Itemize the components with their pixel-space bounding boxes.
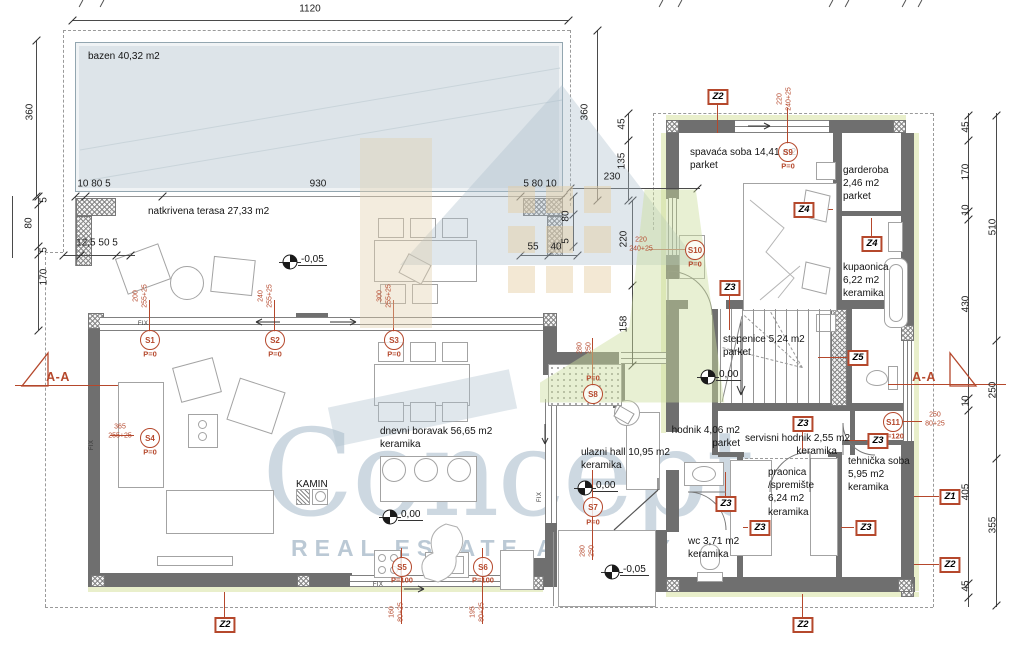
dimension-label: 12,5 50 5 [76,238,118,249]
dimension-label: 55 [527,242,538,253]
room-label-line: tehnička soba [848,455,910,468]
dimension-label: 510 [988,219,999,236]
red-leader-line [743,527,748,528]
opening-size-s3: 300 255+25 [376,284,394,308]
zone-marker-z1: Z1 [939,489,960,505]
sink-bowl [448,556,464,574]
dimension-label: 5 [561,238,572,244]
wall [666,300,679,316]
wall [842,211,905,216]
room-label-line: garderoba [843,164,889,177]
toilet-tank [697,572,723,582]
opening-marker-s7: S7 [583,497,603,517]
opening-parapet-s4: P=0 [143,448,157,457]
dashed-outline [63,30,570,31]
dimension-label: 405 [961,484,972,501]
zone-marker-z4: Z4 [861,236,882,252]
red-leader-line [648,249,686,250]
stair-riser [819,309,820,403]
room-label-line: kupaonica [843,261,889,274]
dimension-label: 170 [961,164,972,181]
garderoba-desk [888,222,903,252]
dimension-label: 45 [961,121,972,132]
terrace-edge-line [75,196,565,197]
window [100,317,543,331]
dimension-label: 5 [39,247,50,253]
pool-area [75,42,563,192]
fireplace-circle [315,491,326,502]
dimension-label: 930 [310,179,327,190]
projection-tick [100,0,105,7]
dimension-line [628,113,629,200]
level-value: 0,00 [398,509,423,521]
dimension-label: 230 [604,172,621,183]
zone-marker-z3: Z3 [867,433,888,449]
dimension-line [36,40,37,196]
window [668,198,677,255]
red-leader-line [914,496,939,497]
decor [198,432,207,441]
wall [666,133,679,199]
room-label-line: praonica [768,466,814,479]
room-label-line: keramika [843,287,889,300]
red-leader-line [717,105,718,133]
wall [718,452,744,457]
red-leader-line [224,592,225,618]
fix-glazing-label: FIX [537,492,543,502]
dimension-label: 5 80 10 [523,179,556,190]
room-label-praonica: praonica/spremište6,24 m2keramika [768,466,814,519]
level-marker [605,565,620,580]
dimension-label: 45 [961,580,972,591]
dimension-line [597,30,598,200]
logo-window-square [546,266,573,293]
room-label-line: 5,95 m2 [848,468,910,481]
room-label-line: bazen 40,32 m2 [88,50,160,63]
room-label-tehnicka-soba: tehnička soba5,95 m2keramika [848,455,910,495]
projection-tick [902,0,907,7]
opening-marker-s11: S11 [883,412,903,432]
room-label-line: 6,24 m2 [768,492,814,505]
opening-size-s7: 280 250 [579,545,597,557]
opening-marker-s6: S6 [473,557,493,577]
stair-riser [720,309,721,403]
facade-strip [88,587,543,592]
zone-marker-z2: Z2 [707,89,728,105]
room-label-line: keramika [581,459,670,472]
room-label-line: wc 3,71 m2 [688,535,739,548]
projection-tick [845,0,850,7]
projection-tick [918,0,923,7]
wall [666,316,679,432]
room-label-natkrivena-terasa: natkrivena terasa 27,33 m2 [148,205,269,218]
wall [712,403,905,411]
wall [666,470,679,532]
opening-size-s2: 240 255+25 [257,284,275,308]
stair-riser [808,309,809,403]
wc-basin [692,466,716,482]
opening-marker-s2: S2 [265,330,285,350]
stair-riser [830,309,831,403]
sink-bowl [428,556,444,574]
wall [850,411,855,455]
room-label-kupaonica: kupaonica6,22 m2keramika [843,261,889,301]
zone-marker-z3: Z3 [719,280,740,296]
opening-marker-s1: S1 [140,330,160,350]
room-label-line: 2,46 m2 [843,177,889,190]
dimension-label: 10 [961,395,972,406]
room-label-hodnik: hodnik 4,06 m2parket [662,424,740,450]
window [545,399,557,523]
room-label-bazen: bazen 40,32 m2 [88,50,160,63]
dimension-label: 158 [619,316,630,333]
dimension-label: 135 [617,153,628,170]
hatched-column [91,575,105,587]
red-leader-line [816,209,833,210]
room-label-kamin: KAMIN [296,478,328,491]
terrace-chair [210,256,256,296]
opening-size-s4: 365 255+25 [108,423,132,441]
dashed-outline [933,113,934,607]
bar-stool [382,458,406,482]
facade-strip [914,133,919,591]
opening-size-s10: 220 240+25 [629,236,653,254]
level-marker [383,510,398,525]
window [735,120,829,133]
room-label-line: ulazni hall 10,95 m2 [581,446,670,459]
room-label-line: keramika [745,445,837,458]
red-leader-line [15,385,118,386]
room-label-line: hodnik 4,06 m2 [662,424,740,437]
bathtub-inner [889,264,903,322]
opening-parapet-s5: P=100 [391,576,413,585]
bed [743,183,837,311]
zone-marker-z2: Z2 [792,617,813,633]
armchair [226,378,285,435]
red-leader-line [725,472,726,497]
wall [88,573,352,587]
opening-parapet-s1: P=0 [143,350,157,359]
chair [442,402,468,422]
opening-size-s6: 195 80+25 [469,602,487,622]
dashed-outline [653,113,933,114]
red-leader-line [871,218,872,237]
level-marker [578,481,593,496]
wall [666,255,679,279]
storage-shelf [810,458,838,556]
chair [378,218,404,238]
room-label-wc: wc 3,71 m2keramika [688,535,739,561]
room-label-line: keramika [848,481,910,494]
room-label-line: servisni hodnik 2,55 m2 [745,432,837,445]
room-label-dnevni-boravak: dnevni boravak 56,65 m2keramika [380,425,492,451]
chair [412,284,438,304]
room-label-line: KAMIN [296,478,328,491]
tv-bench [157,556,233,566]
burner [378,566,386,574]
red-leader-line [818,357,847,358]
fix-glazing-label: FIX [89,440,95,450]
zone-marker-z5: Z5 [847,350,868,366]
dimension-label: 430 [961,296,972,313]
logo-window-square [584,266,611,293]
dimension-label: 80 [561,210,572,221]
projection-tick [659,0,664,7]
room-label-garderoba: garderoba2,46 m2parket [843,164,889,204]
zone-marker-z3: Z3 [855,520,876,536]
corner-cabinet [500,550,534,590]
fireplace [296,489,310,505]
room-label-ulazni-hall: ulazni hall 10,95 m2keramika [581,446,670,472]
chair [442,218,468,238]
zone-marker-z3: Z3 [792,416,813,432]
armchair [172,357,222,403]
level-value: -0,05 [298,254,327,266]
zone-marker-z2: Z2 [214,617,235,633]
dimension-label: 250 [988,382,999,399]
red-leader-line [802,594,803,618]
dimension-label: 170 [39,269,50,286]
hatched-column [297,575,310,587]
opening-marker-s4: S4 [140,428,160,448]
dimension-line [968,113,969,607]
projection-tick [79,0,84,7]
room-label-stepenice: stepenice 5,24 m2parket [723,333,805,359]
opening-parapet-s9: P=0 [781,162,795,171]
red-leader-line [787,108,788,144]
opening-marker-s10: S10 [685,240,705,260]
window [903,341,912,441]
opening-size-s1: 200 255+25 [132,284,150,308]
opening-parapet-s8: P=0 [586,374,600,383]
room-label-line: keramika [380,438,492,451]
fix-glazing-label: FIX [373,582,383,588]
dashed-outline [45,252,46,607]
sofa [166,490,274,534]
chair [378,402,404,422]
zone-marker-z2: Z2 [939,557,960,573]
opening-parapet-s6: P=100 [472,576,494,585]
dimension-line [12,196,13,258]
zone-marker-z3: Z3 [749,520,770,536]
hatched-column [898,579,912,592]
fix-glazing-label: FIX [138,321,148,327]
dimension-line [573,196,574,251]
logo-window-square [508,266,535,293]
dining-table [374,364,470,406]
bar-stool [414,458,438,482]
level-value: 0,00 [716,369,741,381]
room-label-line: keramika [768,506,814,519]
opening-parapet-s7: P=0 [586,518,600,527]
chair [410,218,436,238]
dimension-label: 1120 [299,4,321,15]
room-label-line: stepenice 5,24 m2 [723,333,805,346]
dimension-line [570,188,700,189]
opening-marker-s5: S5 [392,557,412,577]
projection-tick [678,0,683,7]
dimension-label: 355 [988,517,999,534]
dimension-label: 10 [961,204,972,215]
hatched-column [893,120,906,133]
hatched-column [543,313,557,327]
burner [378,554,386,562]
dimension-label: 10 80 5 [77,179,110,190]
level-marker [701,370,716,385]
dimension-line [63,255,135,256]
dimension-label: 360 [580,104,591,121]
section-label: A-A [912,370,936,384]
dashed-outline [570,30,571,206]
red-leader-line [902,421,922,422]
room-label-line: parket [662,437,740,450]
opening-parapet-s10: P=0 [688,260,702,269]
window [621,352,666,364]
hatched-column [666,579,680,592]
opening-size-s5: 160 80+25 [388,602,406,622]
dimension-label: 45 [617,118,628,129]
wall [88,315,100,587]
dimension-label: 80 [24,217,35,228]
dashed-outline [653,113,654,230]
zone-marker-z3: Z3 [715,496,736,512]
room-label-line: 6,22 m2 [843,274,889,287]
red-leader-line [841,527,854,528]
room-label-line: /spremište [768,479,814,492]
terrace-table [170,266,204,300]
opening-size-s11: 250 80+25 [925,411,945,429]
room-label-servisni-hodnik: servisni hodnik 2,55 m2keramika [745,432,837,458]
porch-step-line [553,532,554,606]
bar-stool [447,458,471,482]
opening-parapet-s2: P=0 [268,350,282,359]
opening-size-s8: 280 250 [576,342,594,354]
door-opening [688,300,726,309]
floor-plan-canvas: Concept REAL ESTATE AGENCY 3.4684 bazen … [0,0,1018,653]
room-label-line: parket [723,346,805,359]
decor [198,420,207,429]
level-value: 0,00 [593,480,618,492]
dimension-label: 5 [39,197,50,203]
opening-size-s9: 220 240+25 [776,87,794,111]
chair [410,342,436,362]
opening-marker-s9: S9 [778,142,798,162]
room-label-line: dnevni boravak 56,65 m2 [380,425,492,438]
dimension-label: 220 [619,231,630,248]
wall [712,309,718,403]
level-value: -0,05 [620,564,649,576]
opening-marker-s3: S3 [384,330,404,350]
dashed-outline [45,607,933,608]
chair [442,342,468,362]
section-label: A-A [46,370,70,384]
toilet-tank [888,366,898,390]
level-marker [283,255,298,270]
section-triangle [950,353,976,386]
logo-window-square [584,226,611,253]
red-leader-line [914,564,939,565]
room-label-line: parket [843,190,889,203]
hatched-column [666,120,679,133]
opening-parapet-s3: P=0 [387,350,401,359]
room-label-line: keramika [688,548,739,561]
dimension-label: 360 [25,104,36,121]
opening-marker-s8: S8 [583,384,603,404]
red-leader-line [729,295,730,330]
room-label-line: natkrivena terasa 27,33 m2 [148,205,269,218]
chair [410,402,436,422]
toilet-bowl [866,370,888,386]
hatched-column [523,198,563,216]
facade-strip [666,592,919,597]
dashed-outline [63,30,64,252]
zone-marker-z4: Z4 [793,202,814,218]
nightstand [816,162,836,180]
dimension-line [72,20,568,21]
dimension-line [38,196,39,330]
projection-tick [829,0,834,7]
